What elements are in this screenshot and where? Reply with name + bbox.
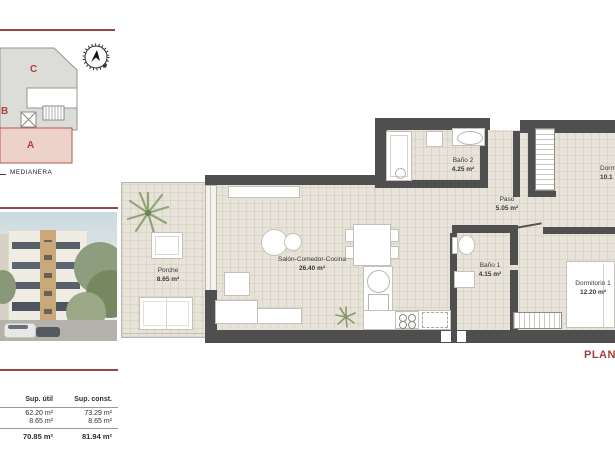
wall-segment bbox=[452, 225, 512, 233]
plant-icon bbox=[334, 305, 358, 329]
wall-segment bbox=[543, 227, 615, 234]
wall-opening bbox=[457, 331, 466, 342]
table-header-row: Sup. útilSup. const. bbox=[0, 396, 118, 403]
sideboard bbox=[228, 186, 300, 198]
shower bbox=[386, 131, 412, 181]
upper-cabinet bbox=[422, 312, 448, 328]
table-rule bbox=[0, 428, 118, 429]
wall-segment bbox=[205, 330, 615, 343]
dining-table bbox=[353, 224, 391, 266]
stove bbox=[395, 311, 419, 329]
divider-line-table bbox=[0, 369, 118, 371]
porch-lounger bbox=[139, 297, 193, 330]
col-header-sup-const: Sup. const. bbox=[54, 396, 112, 403]
table-total-row: 70.85 m²81.94 m² bbox=[0, 432, 118, 441]
room-label-salon: Salón-Comedor-Cocina 26.40 m² bbox=[278, 255, 346, 274]
sofa bbox=[257, 308, 302, 324]
section-a-highlight bbox=[0, 128, 72, 163]
wall-segment bbox=[513, 131, 520, 197]
vanity-counter bbox=[452, 128, 485, 146]
wall-segment bbox=[381, 180, 487, 188]
palm-tree-icon bbox=[124, 189, 172, 237]
wardrobe bbox=[535, 128, 555, 191]
section-label-a: A bbox=[27, 140, 34, 151]
col-header-sup-util: Sup. útil bbox=[0, 396, 53, 403]
armchair bbox=[224, 272, 250, 296]
medianera-label: MEDIANERA bbox=[10, 169, 52, 176]
bath-sink bbox=[426, 131, 443, 147]
sofa bbox=[215, 300, 258, 324]
room-label-bano1: Baño 1 4.15 m² bbox=[479, 261, 501, 280]
room-label-dormitorio2-cut: Dorm 10.1 bbox=[600, 164, 615, 183]
table-row: 62.20 m²73.29 m² bbox=[0, 410, 118, 417]
room-label-bano2: Baño 2 4.25 m² bbox=[452, 156, 474, 175]
medianera-tick bbox=[0, 174, 6, 175]
wall-segment bbox=[528, 126, 535, 196]
photo-car bbox=[36, 327, 60, 337]
plan-sheet: C B A MEDIANERA Sup. útilSup. const. 62.… bbox=[0, 0, 615, 454]
table-rule bbox=[0, 407, 118, 408]
chair bbox=[390, 246, 399, 259]
room-label-paso: Paso 5.05 m² bbox=[496, 195, 518, 214]
room-label-porche: Porche 8.65 m² bbox=[157, 266, 179, 285]
chair bbox=[390, 229, 399, 242]
wall-segment bbox=[528, 191, 556, 197]
divider-line-photo bbox=[0, 207, 118, 209]
section-label-b: B bbox=[1, 106, 8, 117]
window-glass bbox=[205, 185, 217, 291]
wall-segment bbox=[510, 225, 518, 265]
divider-line-top bbox=[0, 29, 115, 31]
building-photo bbox=[0, 212, 117, 341]
kitchen-column bbox=[363, 266, 393, 312]
table-row: 8.65 m²8.65 m² bbox=[0, 418, 118, 425]
kitchen-sink bbox=[367, 270, 390, 293]
toilet bbox=[458, 235, 475, 255]
coffee-table bbox=[284, 233, 302, 251]
key-plan-courtyard bbox=[27, 88, 77, 108]
plan-title: PLANT bbox=[584, 349, 615, 361]
window-louver bbox=[513, 312, 562, 329]
room-label-dormitorio1: Dormitorio 1 12.20 m² bbox=[575, 279, 610, 298]
section-label-c: C bbox=[30, 64, 37, 75]
key-plan bbox=[0, 46, 80, 168]
wall-opening bbox=[441, 331, 451, 342]
wall-segment bbox=[205, 175, 381, 185]
north-arrow-icon bbox=[82, 43, 112, 73]
porch-table bbox=[151, 232, 183, 259]
bath-sink bbox=[454, 271, 475, 288]
